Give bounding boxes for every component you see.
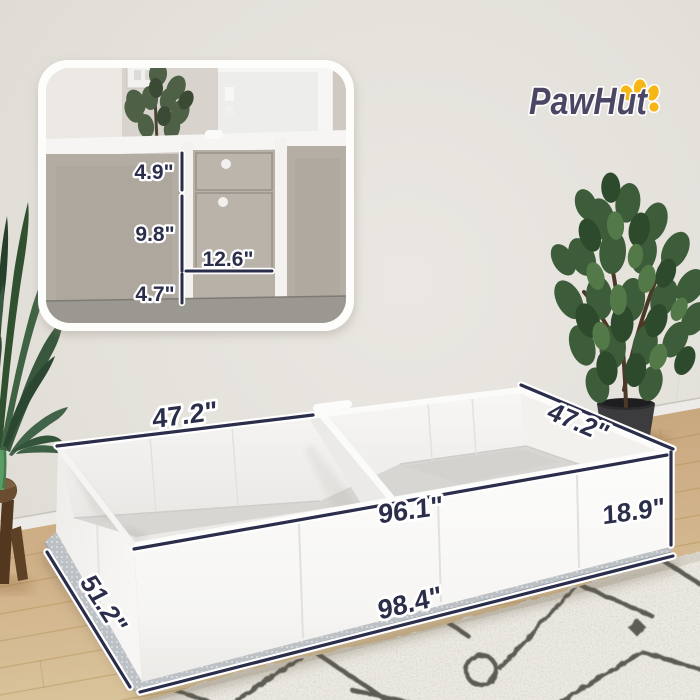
svg-text:PawHut: PawHut <box>529 81 648 123</box>
svg-text:4.9": 4.9" <box>134 161 173 184</box>
svg-text:12.6": 12.6" <box>203 248 254 271</box>
svg-text:4.7": 4.7" <box>135 283 174 306</box>
svg-text:9.8": 9.8" <box>135 223 174 246</box>
